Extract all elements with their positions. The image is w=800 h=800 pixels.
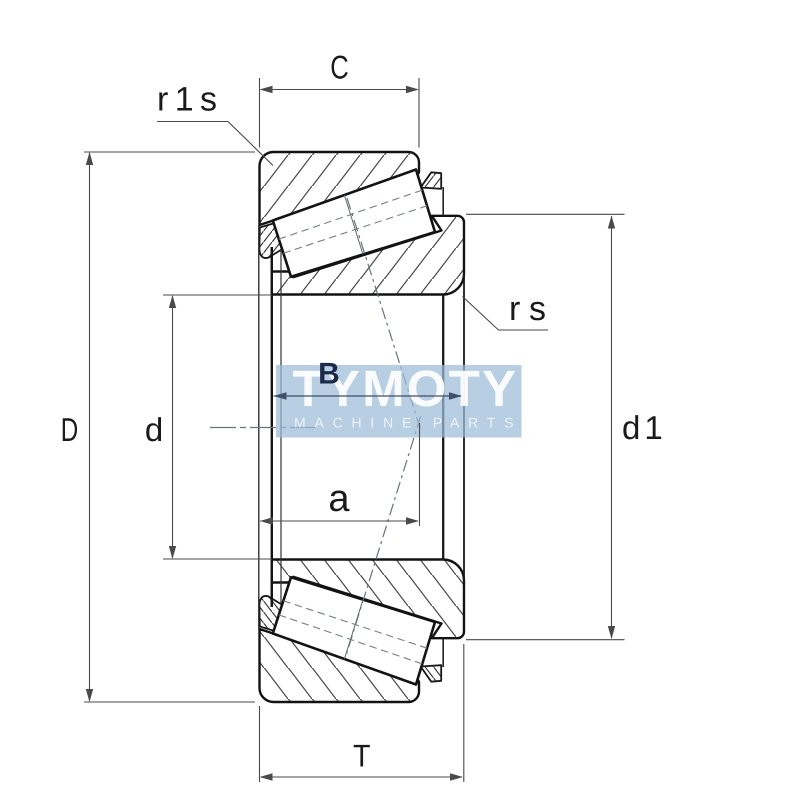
svg-text:MACHINE PARTS: MACHINE PARTS <box>294 415 522 431</box>
svg-text:T: T <box>353 738 371 774</box>
svg-text:d1: d1 <box>622 409 667 446</box>
svg-text:rs: rs <box>509 290 555 328</box>
svg-text:r1s: r1s <box>157 81 223 119</box>
svg-text:D: D <box>61 411 79 448</box>
svg-text:B: B <box>318 358 340 391</box>
svg-text:d: d <box>145 411 163 448</box>
svg-text:C: C <box>330 49 349 86</box>
svg-text:a: a <box>328 478 350 520</box>
